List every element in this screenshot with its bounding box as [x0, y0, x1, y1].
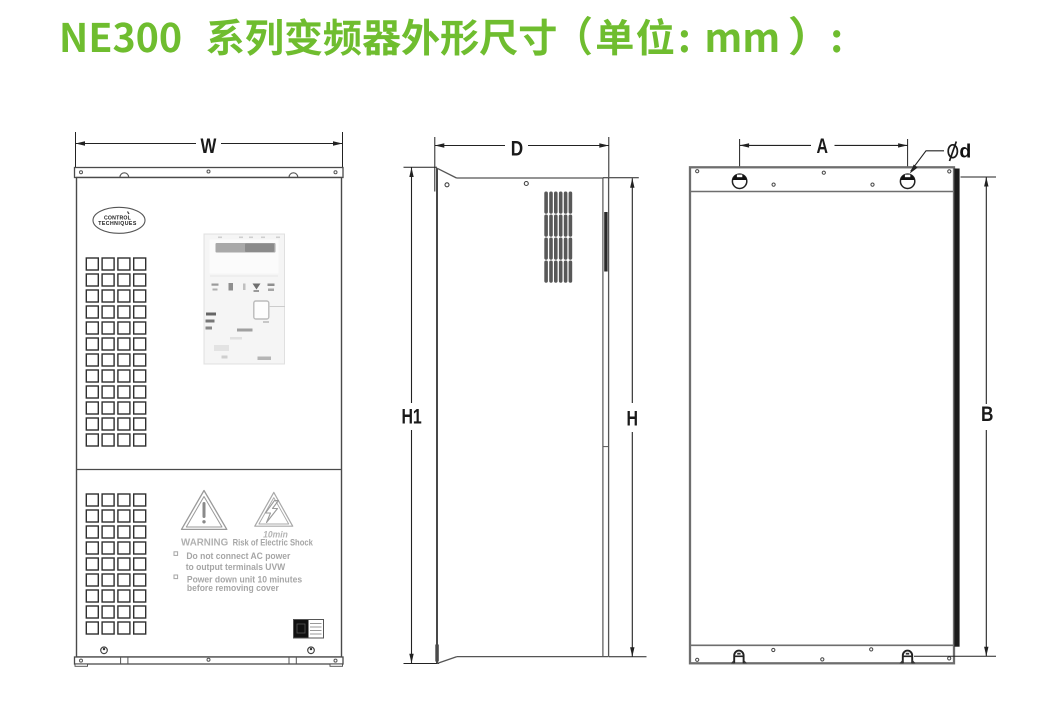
svg-text:Do not connect AC power: Do not connect AC power — [186, 551, 290, 562]
svg-text:to output terminals UVW: to output terminals UVW — [186, 562, 286, 573]
svg-text:H1: H1 — [401, 405, 421, 429]
svg-text:A: A — [817, 135, 829, 159]
svg-text:before removing cover: before removing cover — [187, 583, 279, 594]
svg-text:TECHNIQUES: TECHNIQUES — [98, 221, 137, 227]
svg-text:D: D — [511, 137, 523, 161]
svg-text:W: W — [200, 135, 217, 158]
svg-text:H: H — [626, 407, 637, 431]
svg-text:B: B — [981, 402, 993, 426]
svg-text:Risk of Electric Shock: Risk of Electric Shock — [233, 537, 314, 548]
svg-text:d: d — [959, 141, 971, 163]
svg-text:WARNING: WARNING — [181, 537, 228, 548]
